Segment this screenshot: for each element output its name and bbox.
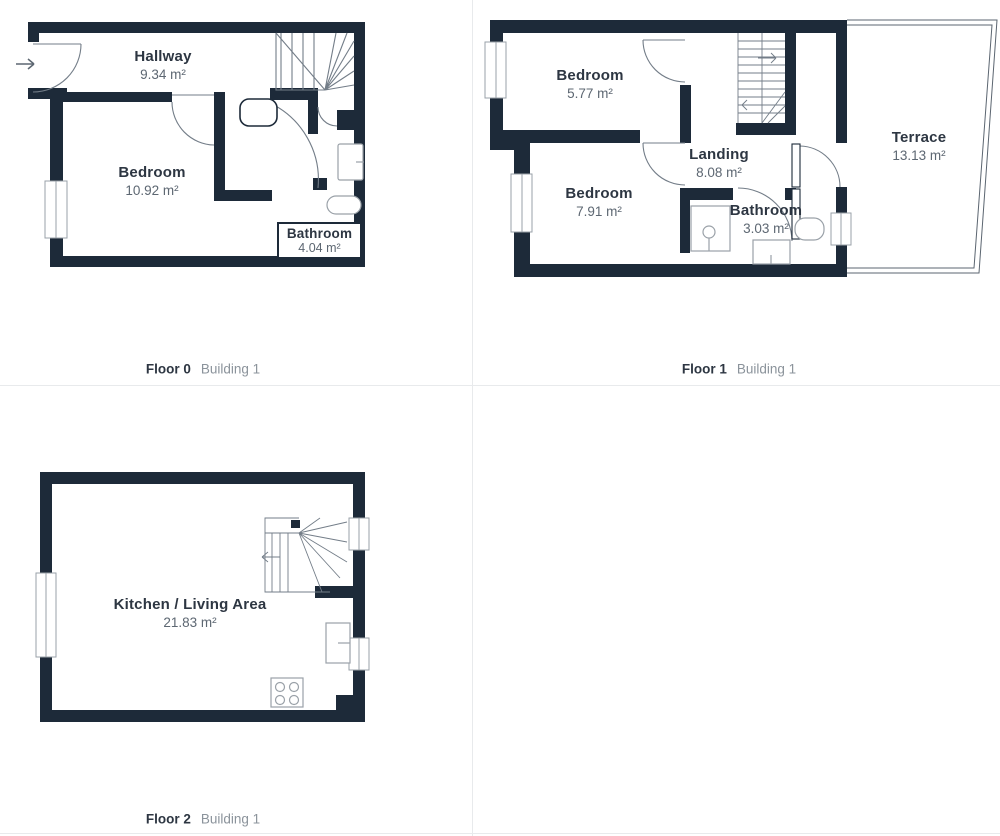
room-label-kitchen-f2: Kitchen / Living Area 21.83 m² bbox=[114, 596, 267, 632]
room-label-bedroom2-f1: Bedroom 7.91 m² bbox=[565, 185, 632, 221]
floor1-stairs-icon bbox=[738, 33, 785, 123]
stairs-up-arrow-icon bbox=[758, 53, 776, 63]
floorplan-page: Hallway 9.34 m² Bedroom 10.92 m² Bathroo… bbox=[0, 0, 1000, 836]
door-leaf-panel bbox=[240, 99, 277, 126]
floor2-caption-name: Floor 2 bbox=[146, 812, 191, 827]
terrace-door-arc bbox=[800, 146, 840, 187]
cooktop-icon bbox=[271, 678, 303, 707]
floor1-caption-building: Building 1 bbox=[737, 362, 796, 377]
stairs-down-arrow-icon bbox=[742, 100, 760, 110]
toilet-icon bbox=[327, 196, 361, 214]
floor0-fixtures bbox=[327, 144, 364, 214]
floor0-plan bbox=[0, 0, 472, 385]
floor2-caption: Floor 2Building 1 bbox=[146, 812, 260, 827]
floor2-stairs-icon bbox=[262, 518, 347, 592]
floor0-caption-building: Building 1 bbox=[201, 362, 260, 377]
floor1-caption-name: Floor 1 bbox=[682, 362, 727, 377]
room-label-bedroom1-f1: Bedroom 5.77 m² bbox=[556, 67, 623, 103]
room-label-landing-f1: Landing 8.08 m² bbox=[689, 146, 749, 182]
room-label-bathroom-f1: Bathroom 3.03 m² bbox=[730, 202, 802, 238]
floor1-plan bbox=[472, 0, 1000, 385]
bedroom-door-arc bbox=[172, 102, 214, 145]
understairs-door-arc bbox=[318, 107, 337, 126]
room-label-terrace-f1: Terrace 13.13 m² bbox=[892, 129, 947, 165]
floor2-caption-building: Building 1 bbox=[201, 812, 260, 827]
terrace-door-leaf bbox=[792, 144, 800, 187]
bedroom2-door-arc bbox=[643, 143, 685, 185]
room-label-hallway: Hallway 9.34 m² bbox=[134, 48, 191, 84]
room-label-bedroom-f0: Bedroom 10.92 m² bbox=[118, 164, 185, 200]
floor1-caption: Floor 1Building 1 bbox=[682, 362, 796, 377]
floor2-fixtures bbox=[271, 623, 350, 707]
floor0-window bbox=[45, 181, 67, 238]
bedroom1-door-arc bbox=[643, 40, 685, 82]
entry-door-arc bbox=[33, 44, 81, 92]
floor0-stairs-icon bbox=[276, 33, 354, 90]
entry-arrow-icon bbox=[16, 59, 34, 69]
floor0-caption: Floor 0Building 1 bbox=[146, 362, 260, 377]
room-label-bathroom-f0: Bathroom 4.04 m² bbox=[277, 222, 362, 259]
floor0-caption-name: Floor 0 bbox=[146, 362, 191, 377]
